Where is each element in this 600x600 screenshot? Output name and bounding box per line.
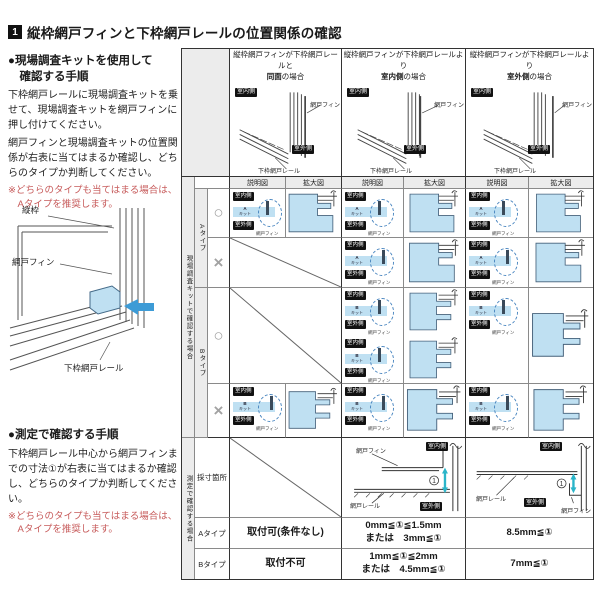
outdoor-chip: 室外側 bbox=[528, 145, 550, 154]
subheader-explain: 説明図 bbox=[466, 177, 529, 189]
indoor-chip: 室内側 bbox=[345, 291, 366, 300]
kit-type-label: Bキット bbox=[349, 401, 365, 412]
corner-drawing bbox=[8, 200, 178, 378]
a-value-col1: 取付可(条件なし) bbox=[230, 518, 342, 549]
na-diagonal-cell bbox=[230, 438, 342, 518]
outdoor-chip: 室外側 bbox=[345, 368, 366, 377]
b-value-col3: 7mm≦① bbox=[466, 549, 593, 579]
outdoor-chip: 室外側 bbox=[524, 498, 546, 507]
kit-type-label: Bキット bbox=[473, 401, 489, 412]
header-diagram: 室内側 網戸フィン 室外側 下枠網戸レール bbox=[230, 83, 341, 177]
kit-type-label: Bキット bbox=[349, 353, 365, 364]
outdoor-chip: 室外側 bbox=[469, 221, 490, 230]
highlight-ellipse bbox=[258, 199, 282, 227]
highlight-ellipse bbox=[370, 298, 394, 326]
column-header-outdoor: 縦枠網戸フィンが下枠網戸レールより 室外側の場合 室内側 網戸フィン 室外側 下… bbox=[466, 49, 593, 177]
measure-method-para1: 下枠網戸レール中心から網戸フィンまでの寸法①が右表に当てはまるか確認し、どちらの… bbox=[8, 447, 180, 507]
header-corner-drawing bbox=[342, 83, 465, 177]
na-diagonal-cell bbox=[230, 288, 342, 384]
kit-diagram-cell: 室内側 Aキット 室外側 網戸フィン bbox=[466, 189, 529, 238]
kit-type-label: Aキット bbox=[473, 255, 489, 266]
outdoor-chip: 室外側 bbox=[469, 270, 490, 279]
kit-diagram-cell: 室内側 Aキット 室外側 網戸フィン bbox=[466, 238, 529, 288]
kit-diagram-cell: 室内側 Bキット 室外側 網戸フィン bbox=[342, 384, 404, 438]
corner-perspective-diagram: 縦枠 網戸フィン 下枠網戸レール bbox=[8, 200, 178, 378]
indoor-chip: 室内側 bbox=[469, 291, 490, 300]
svg-text:1: 1 bbox=[432, 478, 436, 485]
indoor-chip: 室内側 bbox=[233, 387, 254, 396]
fin-caption: 網戸フィン bbox=[561, 506, 591, 515]
kit-type-label: Aキット bbox=[349, 255, 365, 266]
fin-caption: 網戸フィン bbox=[356, 446, 386, 455]
kit-type-label: Bキット bbox=[473, 305, 489, 316]
outdoor-chip: 室外側 bbox=[292, 145, 314, 154]
header-corner-drawing bbox=[466, 83, 593, 177]
a-value-col2: 0mm≦①≦1.5mm または 3mm≦① bbox=[342, 518, 466, 549]
page-title: 1 縦枠網戸フィンと下枠網戸レールの位置関係の確認 bbox=[8, 22, 342, 42]
kit-method-section: ●現場調査キットを使用して 確認する手順 下枠網戸レールに現場調査キットを乗せて… bbox=[8, 54, 180, 212]
na-diagonal-cell bbox=[230, 238, 342, 288]
svg-text:1: 1 bbox=[560, 481, 564, 488]
indoor-chip: 室内側 bbox=[345, 387, 366, 396]
table-corner-cell bbox=[182, 49, 230, 177]
indoor-chip: 室内側 bbox=[540, 442, 562, 451]
measure-method-note: ※どちらのタイプも当てはまる場合は、 Aタイプを推奨します。 bbox=[8, 510, 180, 538]
diagonal-line bbox=[230, 288, 341, 383]
kit-type-label: Bキット bbox=[349, 305, 365, 316]
kit-diagram-cell-stacked: 室内側 Bキット 室外側 網戸フィン 室内側 Bキット 室外側 網戸フィン bbox=[342, 288, 404, 384]
fin-caption: 網戸フィン bbox=[310, 100, 340, 109]
kit-method-para2: 網戸フィンと現場調査キットの位置関係が右表に当てはまるか確認し、どちらのタイプか… bbox=[8, 136, 180, 181]
fin-mark bbox=[378, 300, 381, 314]
position-check-table: 縦枠網戸フィンが下枠網戸レールと 同面の場合 室内側 網戸フィン 室外側 下枠網… bbox=[181, 48, 594, 580]
enlarged-cell bbox=[529, 238, 593, 288]
measure-method-section: ●測定で確認する手順 下枠網戸レール中心から網戸フィンまでの寸法①が右表に当ては… bbox=[8, 428, 180, 537]
column-header-indoor: 縦枠網戸フィンが下枠網戸レールより 室内側の場合 室内側 網戸フィン 室外側 下… bbox=[342, 49, 466, 177]
enlarged-profile-drawing bbox=[529, 189, 593, 237]
fin-mark bbox=[382, 250, 385, 264]
enlarged-profile-drawing bbox=[286, 189, 341, 237]
fin-caption: 網戸フィン bbox=[368, 280, 390, 286]
a-value-col3: 8.5mm≦① bbox=[466, 518, 593, 549]
enlarged-cell bbox=[286, 384, 342, 438]
fin-caption: 網戸フィン bbox=[368, 231, 390, 237]
enlarged-cell bbox=[404, 238, 466, 288]
fin-caption: 網戸フィン bbox=[492, 231, 514, 237]
kit-method-para1: 下枠網戸レールに現場調査キットを乗せて、現場調査キットを網戸フィンに押し付けてく… bbox=[8, 88, 180, 133]
kit-method-heading: ●現場調査キットを使用して 確認する手順 bbox=[8, 54, 180, 85]
survey-kit-block bbox=[90, 286, 120, 314]
rail-caption: 下枠網戸レール bbox=[494, 166, 536, 175]
fin-mark bbox=[378, 201, 381, 215]
indoor-chip: 室内側 bbox=[471, 88, 493, 97]
enlarged-cell-stacked bbox=[404, 288, 466, 384]
fin-mark bbox=[382, 396, 385, 410]
indoor-chip: 室内側 bbox=[426, 442, 448, 451]
highlight-ellipse bbox=[494, 199, 518, 227]
mark-ok: ○ bbox=[208, 189, 230, 238]
page-title-text: 縦枠網戸フィンと下枠網戸レールの位置関係の確認 bbox=[27, 22, 342, 42]
column-header-same-plane: 縦枠網戸フィンが下枠網戸レールと 同面の場合 室内側 網戸フィン 室外側 下枠網… bbox=[230, 49, 342, 177]
rail-caption: 網戸レール bbox=[476, 494, 506, 503]
enlarged-cell bbox=[529, 288, 593, 384]
header-diagram: 室内側 網戸フィン 室外側 下枠網戸レール bbox=[466, 83, 593, 177]
kit-type-label: Aキット bbox=[349, 206, 365, 217]
indoor-chip: 室内側 bbox=[469, 387, 490, 396]
enlarged-cell bbox=[404, 384, 466, 438]
diagonal-line bbox=[230, 438, 341, 517]
document-page: 1 縦枠網戸フィンと下枠網戸レールの位置関係の確認 ●現場調査キットを使用して … bbox=[0, 0, 600, 600]
rail-caption: 網戸レール bbox=[350, 501, 380, 510]
frame-label: 縦枠 bbox=[22, 204, 39, 216]
kit-diagram-cell: 室内側 Bキット 室外側 網戸フィン bbox=[466, 288, 529, 384]
fin-caption: 網戸フィン bbox=[492, 280, 514, 286]
header-diagram: 室内側 網戸フィン 室外側 下枠網戸レール bbox=[342, 83, 465, 177]
enlarged-profile-drawing bbox=[529, 238, 593, 287]
kit-type-label: Bキット bbox=[237, 401, 253, 412]
b-value-col1: 取付不可 bbox=[230, 549, 342, 579]
kit-type-label: Aキット bbox=[237, 206, 253, 217]
kit-section-label: 現場調査キットで確認する場合 bbox=[182, 177, 195, 438]
fin-label: 網戸フィン bbox=[12, 256, 54, 268]
fin-mark bbox=[266, 201, 269, 215]
highlight-ellipse bbox=[370, 346, 394, 374]
indoor-chip: 室内側 bbox=[233, 192, 254, 201]
fin-caption: 網戸フィン bbox=[368, 426, 390, 432]
fin-mark bbox=[502, 300, 505, 314]
enlarged-profile-drawing bbox=[404, 288, 465, 336]
mark-ng: × bbox=[208, 238, 230, 288]
rail-caption: 下枠網戸レール bbox=[258, 166, 300, 175]
fin-caption: 網戸フィン bbox=[256, 231, 278, 237]
outdoor-chip: 室外側 bbox=[233, 416, 254, 425]
enlarged-cell bbox=[286, 189, 342, 238]
highlight-ellipse bbox=[370, 199, 394, 227]
subheader-enlarge: 拡大図 bbox=[404, 177, 466, 189]
subheader-explain: 説明図 bbox=[230, 177, 286, 189]
highlight-ellipse bbox=[494, 298, 518, 326]
section-number-badge: 1 bbox=[8, 25, 22, 39]
subheader-enlarge: 拡大図 bbox=[529, 177, 593, 189]
fin-mark bbox=[502, 201, 505, 215]
type-b-label: Bタイプ bbox=[195, 288, 208, 438]
kit-type-label: Aキット bbox=[473, 206, 489, 217]
kit-diagram-cell: 室内側 Aキット 室外側 網戸フィン bbox=[342, 238, 404, 288]
enlarged-cell bbox=[529, 384, 593, 438]
subheader-blank bbox=[195, 177, 230, 189]
kit-diagram-cell: 室内側 Aキット 室外側 網戸フィン bbox=[230, 189, 286, 238]
outdoor-chip: 室外側 bbox=[420, 502, 442, 511]
outdoor-chip: 室外側 bbox=[404, 145, 426, 154]
enlarged-profile-drawing bbox=[404, 384, 465, 437]
indoor-chip: 室内側 bbox=[347, 88, 369, 97]
enlarged-cell bbox=[529, 189, 593, 238]
fin-caption: 網戸フィン bbox=[492, 330, 514, 336]
outdoor-chip: 室外側 bbox=[345, 320, 366, 329]
header-corner-drawing bbox=[230, 83, 341, 177]
indoor-chip: 室内側 bbox=[235, 88, 257, 97]
measure-diagram-outdoor: 1 室内側 網戸レール 室外側 網戸フィン bbox=[466, 438, 593, 518]
enlarged-profile-drawing bbox=[529, 384, 593, 437]
mark-ok: ○ bbox=[208, 288, 230, 384]
enlarged-profile-drawing bbox=[404, 189, 465, 237]
fin-mark bbox=[506, 250, 509, 264]
indoor-chip: 室内側 bbox=[345, 241, 366, 250]
kit-diagram-cell: 室内側 Bキット 室外側 網戸フィン bbox=[466, 384, 529, 438]
measure-diagram-indoor: 1 網戸フィン 室内側 網戸レール 室外側 bbox=[342, 438, 466, 518]
rail-label: 下枠網戸レール bbox=[64, 362, 124, 374]
fin-caption: 網戸フィン bbox=[492, 426, 514, 432]
measure-section-label: 測定で確認する場合 bbox=[182, 438, 195, 579]
fin-mark bbox=[270, 396, 273, 410]
b-value-col2: 1mm≦①≦2mm または 4.5mm≦① bbox=[342, 549, 466, 579]
rail-caption: 下枠網戸レール bbox=[370, 166, 412, 175]
fin-caption: 網戸フィン bbox=[434, 100, 464, 109]
enlarged-profile-drawing bbox=[404, 238, 465, 287]
outdoor-chip: 室外側 bbox=[469, 320, 490, 329]
fin-mark bbox=[378, 348, 381, 362]
enlarged-cell bbox=[404, 189, 466, 238]
type-a-label: Aタイプ bbox=[195, 189, 208, 288]
kit-diagram-cell: 室内側 Bキット 室外側 網戸フィン bbox=[230, 384, 286, 438]
outdoor-chip: 室外側 bbox=[345, 221, 366, 230]
indoor-chip: 室内側 bbox=[345, 339, 366, 348]
measure-method-heading: ●測定で確認する手順 bbox=[8, 428, 180, 444]
fin-caption: 網戸フィン bbox=[562, 100, 592, 109]
outdoor-chip: 室外側 bbox=[345, 416, 366, 425]
diagonal-line bbox=[230, 238, 341, 287]
enlarged-profile-drawing bbox=[529, 288, 593, 383]
fin-mark bbox=[506, 396, 509, 410]
subheader-explain: 説明図 bbox=[342, 177, 404, 189]
indoor-chip: 室内側 bbox=[469, 241, 490, 250]
enlarged-profile-drawing bbox=[404, 336, 465, 384]
outdoor-chip: 室外側 bbox=[345, 270, 366, 279]
fin-caption: 網戸フィン bbox=[256, 426, 278, 432]
measure-row-a: Aタイプ bbox=[195, 518, 230, 549]
push-arrow-icon bbox=[124, 299, 154, 315]
measure-row-spot: 採寸箇所 bbox=[195, 438, 230, 518]
mark-ng: × bbox=[208, 384, 230, 438]
subheader-enlarge: 拡大図 bbox=[286, 177, 342, 189]
outdoor-chip: 室外側 bbox=[469, 416, 490, 425]
outdoor-chip: 室外側 bbox=[233, 221, 254, 230]
indoor-chip: 室内側 bbox=[345, 192, 366, 201]
measure-row-b: Bタイプ bbox=[195, 549, 230, 579]
enlarged-profile-drawing bbox=[286, 384, 341, 437]
indoor-chip: 室内側 bbox=[469, 192, 490, 201]
kit-diagram-cell: 室内側 Aキット 室外側 網戸フィン bbox=[342, 189, 404, 238]
